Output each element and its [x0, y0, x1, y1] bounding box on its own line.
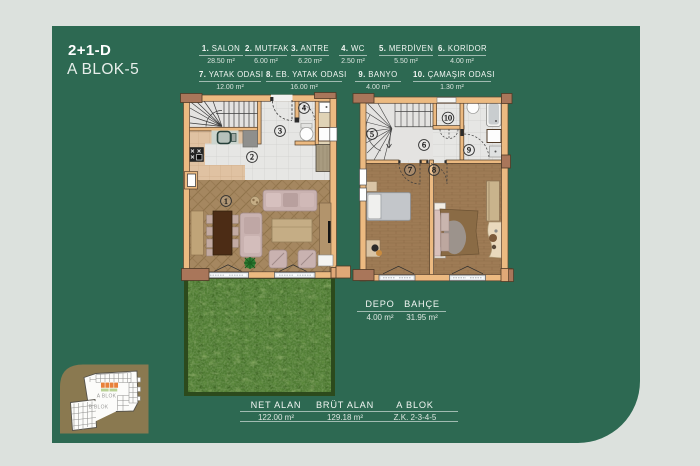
svg-text:10: 10 [444, 114, 452, 123]
svg-text:3: 3 [278, 127, 282, 136]
svg-text:B BLOK: B BLOK [89, 405, 109, 411]
svg-text:6: 6 [422, 141, 426, 150]
svg-text:2: 2 [250, 153, 254, 162]
svg-text:A BLOK: A BLOK [97, 393, 117, 399]
svg-text:5: 5 [370, 130, 374, 139]
svg-text:8: 8 [432, 166, 436, 175]
svg-text:1: 1 [224, 197, 228, 206]
svg-text:9: 9 [467, 146, 471, 155]
svg-text:7: 7 [408, 166, 412, 175]
svg-text:4: 4 [302, 104, 306, 113]
